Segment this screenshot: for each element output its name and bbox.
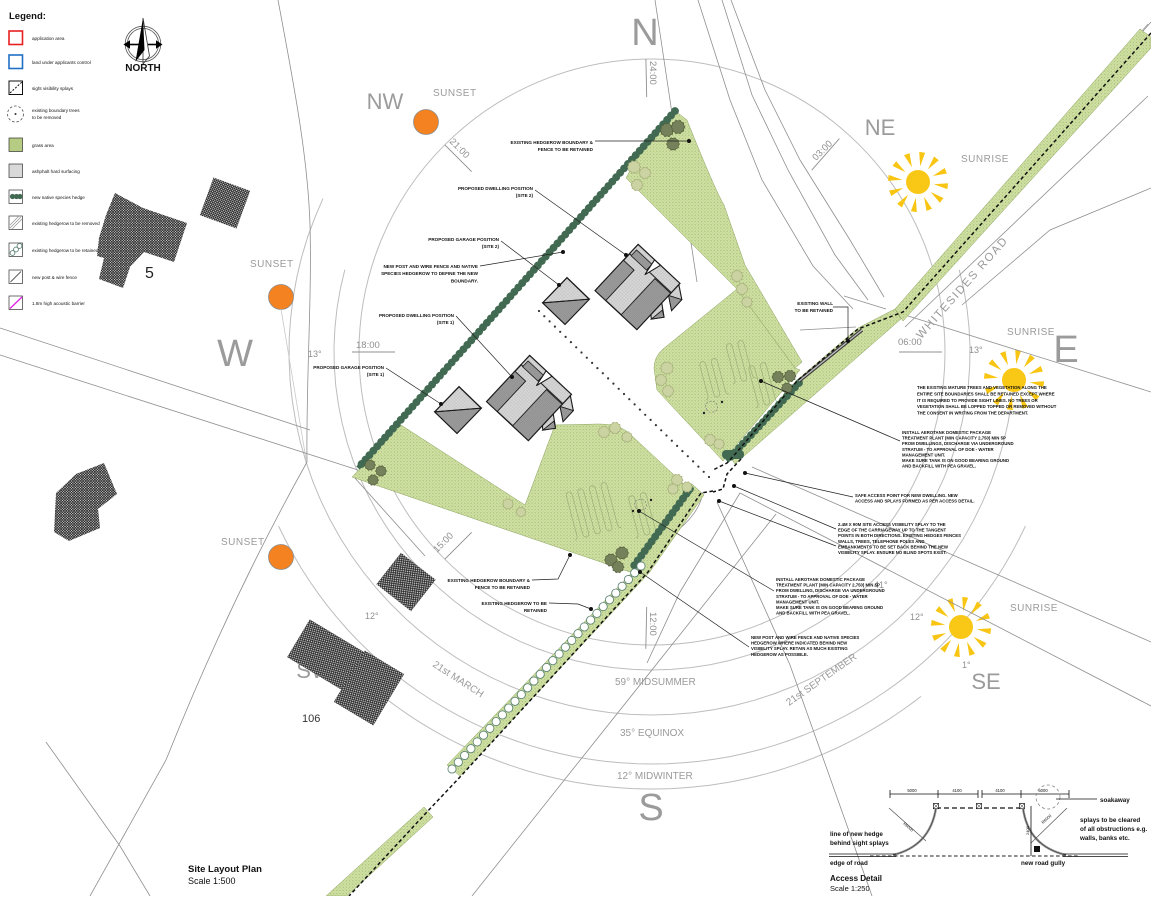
svg-text:Site Layout Plan: Site Layout Plan (188, 864, 262, 875)
svg-text:SE: SE (971, 669, 1000, 694)
svg-text:new native species hedge: new native species hedge (32, 195, 85, 200)
svg-text:sight visibility splays: sight visibility splays (32, 86, 74, 91)
svg-text:NEW POST AND WIRE FENCE AND NA: NEW POST AND WIRE FENCE AND NATIVE SPECI… (751, 635, 859, 640)
svg-text:21:00: 21:00 (447, 136, 472, 161)
svg-text:12°: 12° (910, 612, 924, 622)
svg-text:THE CONSENT IN WRITING FROM TH: THE CONSENT IN WRITING FROM THE DEPARTME… (917, 411, 1028, 416)
svg-text:2400: 2400 (1025, 825, 1030, 835)
svg-text:walls, banks etc.: walls, banks etc. (1079, 835, 1130, 842)
svg-text:1.8m high acoustic barrier: 1.8m high acoustic barrier (32, 301, 85, 306)
svg-text:PROPOSED GARAGE POSITION: PROPOSED GARAGE POSITION (313, 365, 384, 370)
svg-text:5: 5 (145, 265, 154, 282)
svg-text:new post & wire fence: new post & wire fence (32, 275, 77, 280)
svg-text:behind sight splays: behind sight splays (830, 840, 889, 847)
svg-text:12:00: 12:00 (647, 612, 658, 636)
svg-text:RETAINED: RETAINED (524, 608, 548, 613)
svg-text:PROPOSED GARAGE POSITION: PROPOSED GARAGE POSITION (428, 237, 499, 242)
svg-text:12°: 12° (365, 611, 379, 621)
svg-text:application area: application area (32, 36, 65, 41)
svg-text:12° MIDWINTER: 12° MIDWINTER (617, 771, 693, 782)
svg-text:21st MARCH: 21st MARCH (430, 659, 485, 700)
svg-text:S: S (638, 787, 663, 829)
svg-text:35° EQUINOX: 35° EQUINOX (620, 728, 684, 739)
svg-text:grass area: grass area (32, 143, 54, 148)
svg-text:SUNRISE: SUNRISE (1007, 327, 1055, 338)
svg-text:(SITE 2): (SITE 2) (516, 193, 534, 198)
svg-text:soakaway: soakaway (1100, 797, 1130, 804)
svg-text:INSTALL AEROTANK DOMESTIC PACK: INSTALL AEROTANK DOMESTIC PACKAGE (902, 430, 991, 435)
svg-text:POINTS IN BOTH DIRECTIONS. EXI: POINTS IN BOTH DIRECTIONS. EXISTING HEDG… (838, 533, 961, 538)
svg-text:MAKE SURE TANK IS ON GOOD BEAR: MAKE SURE TANK IS ON GOOD BEARING GROUND (902, 458, 1009, 463)
svg-text:EMBANKMENTS TO BE SET BACK BEH: EMBANKMENTS TO BE SET BACK BEHIND THE NE… (838, 544, 949, 549)
svg-text:06:00: 06:00 (898, 337, 922, 348)
svg-text:splays to be cleared: splays to be cleared (1080, 817, 1140, 824)
svg-text:VISIBILITY SPLAY. ENSURE NO BL: VISIBILITY SPLAY. ENSURE NO BLIND SPOTS … (838, 550, 947, 555)
svg-text:THE EXISTING MATURE TREES AND: THE EXISTING MATURE TREES AND VEGETATION… (917, 385, 1047, 390)
svg-text:PROPOSED DWELLING POSITION: PROPOSED DWELLING POSITION (379, 313, 455, 318)
svg-text:W: W (217, 333, 253, 375)
svg-text:VISIBILITY SPLAY. RETAIN AS MU: VISIBILITY SPLAY. RETAIN AS MUCH EXISTIN… (751, 646, 848, 651)
svg-text:EXISTING HEDGEROW TO BE: EXISTING HEDGEROW TO BE (481, 601, 547, 606)
svg-text:TREATMENT PLANT (MIN CAPACITY: TREATMENT PLANT (MIN CAPACITY 2,750) MIN… (902, 436, 1006, 441)
svg-text:(SITE 1): (SITE 1) (367, 372, 385, 377)
svg-text:TO BE RETAINED: TO BE RETAINED (795, 308, 834, 313)
svg-text:E: E (1053, 329, 1078, 371)
svg-text:EXISTING WALL: EXISTING WALL (797, 301, 833, 306)
svg-text:WALLS, TREES, TELEPHONE POLES: WALLS, TREES, TELEPHONE POLES AND (838, 539, 925, 544)
svg-text:existing boundary trees: existing boundary trees (32, 108, 80, 113)
svg-text:EDGE OF THE CARRIAGEWAY UP TO: EDGE OF THE CARRIAGEWAY UP TO THE TANGEN… (838, 528, 947, 533)
svg-text:HEDGEROW AS POSSIBLE.: HEDGEROW AS POSSIBLE. (751, 652, 808, 657)
svg-text:24:00: 24:00 (647, 61, 658, 85)
svg-text:(SITE 1): (SITE 1) (437, 320, 455, 325)
svg-text:03:00: 03:00 (810, 139, 835, 164)
svg-text:13°: 13° (969, 345, 983, 355)
svg-text:R6000: R6000 (1040, 813, 1053, 825)
svg-text:SPECIES HEDGEROW TO DEFINE THE: SPECIES HEDGEROW TO DEFINE THE NEW (381, 271, 479, 276)
svg-text:FENCE TO BE RETAINED: FENCE TO BE RETAINED (475, 585, 531, 590)
svg-text:Scale 1:500: Scale 1:500 (188, 876, 236, 886)
svg-text:SUNRISE: SUNRISE (1010, 603, 1058, 614)
svg-text:4100: 4100 (995, 788, 1005, 793)
svg-text:18:00: 18:00 (356, 340, 380, 351)
svg-text:BOUNDARY.: BOUNDARY. (451, 278, 478, 283)
svg-text:of all obstructions e.g.: of all obstructions e.g. (1080, 826, 1147, 833)
svg-text:PROPOSED DWELLING POSITION: PROPOSED DWELLING POSITION (458, 186, 534, 191)
svg-text:TREATMENT PLANT (MIN CAPACITY: TREATMENT PLANT (MIN CAPACITY 2,750) MIN… (776, 583, 880, 588)
svg-text:SAFE ACCESS POINT FOR NEW DWEL: SAFE ACCESS POINT FOR NEW DWELLING. NEW (855, 493, 959, 498)
svg-text:STRATUM - TO APPROVAL OF DOE -: STRATUM - TO APPROVAL OF DOE - WATER (776, 594, 868, 599)
svg-text:N: N (631, 12, 658, 54)
svg-text:existing hedgerow to be retain: existing hedgerow to be retained (32, 248, 99, 253)
svg-text:13°: 13° (308, 349, 322, 359)
svg-text:(SITE 2): (SITE 2) (482, 244, 500, 249)
svg-text:NE: NE (865, 115, 896, 140)
svg-text:INSTALL AEROTANK DOMESTIC PACK: INSTALL AEROTANK DOMESTIC PACKAGE (776, 577, 865, 582)
svg-text:EXISTING HEDGEROW BOUNDARY &: EXISTING HEDGEROW BOUNDARY & (511, 140, 594, 145)
svg-text:NORTH: NORTH (125, 63, 161, 74)
svg-text:1°: 1° (962, 660, 971, 670)
svg-text:SUNSET: SUNSET (250, 259, 294, 270)
svg-text:EXISTING HEDGEROW BOUNDARY &: EXISTING HEDGEROW BOUNDARY & (448, 578, 531, 583)
svg-text:VEGETATION SHALL BE LOPPED TOP: VEGETATION SHALL BE LOPPED TOPPED OR REM… (917, 404, 1057, 409)
svg-text:R6000: R6000 (902, 821, 915, 833)
svg-text:ashphalt hard surfacing: ashphalt hard surfacing (32, 169, 80, 174)
svg-text:Access Detail: Access Detail (830, 874, 882, 883)
svg-text:MANAGEMENT UNIT.: MANAGEMENT UNIT. (902, 452, 945, 457)
svg-text:MAKE SURE TANK IS ON GOOD BEAR: MAKE SURE TANK IS ON GOOD BEARING GROUND (776, 605, 883, 610)
svg-text:SUNSET: SUNSET (433, 88, 477, 99)
svg-text:NW: NW (367, 89, 404, 114)
svg-text:line of new hedge: line of new hedge (830, 831, 883, 838)
svg-text:edge of road: edge of road (830, 860, 868, 867)
svg-text:5000: 5000 (907, 788, 917, 793)
svg-text:Legend:: Legend: (9, 11, 46, 22)
svg-text:MANAGEMENT UNIT.: MANAGEMENT UNIT. (776, 599, 819, 604)
svg-text:land under applicants control: land under applicants control (32, 60, 91, 65)
svg-text:SUNRISE: SUNRISE (961, 154, 1009, 165)
svg-text:IT IS REQUIRED TO PROVIDE SIGH: IT IS REQUIRED TO PROVIDE SIGHT LINES. N… (917, 398, 1039, 403)
svg-text:AND BACKFILL WITH PEA GRAVEL.: AND BACKFILL WITH PEA GRAVEL. (902, 464, 976, 469)
svg-text:106: 106 (302, 713, 320, 725)
svg-text:AND BACKFILL WITH PEA GRAVEL.: AND BACKFILL WITH PEA GRAVEL. (776, 611, 850, 616)
svg-text:HEDGEROW WHERE INDICATED BEHIN: HEDGEROW WHERE INDICATED BEHIND NEW (751, 641, 848, 646)
svg-text:Scale 1:250: Scale 1:250 (830, 884, 870, 893)
svg-text:to be removed: to be removed (32, 115, 62, 120)
svg-text:59° MIDSUMMER: 59° MIDSUMMER (615, 677, 696, 688)
svg-text:SUNSET: SUNSET (221, 537, 265, 548)
svg-text:new road gully: new road gully (1021, 860, 1066, 867)
svg-text:ENTIRE SITE BOUNDARIES SHALL B: ENTIRE SITE BOUNDARIES SHALL BE RETAINED… (917, 391, 1055, 396)
svg-text:FENCE TO BE RETAINED: FENCE TO BE RETAINED (538, 147, 594, 152)
svg-text:2.4M X 90M SITE ACCESS VISIBIL: 2.4M X 90M SITE ACCESS VISIBILITY SPLAY … (838, 522, 946, 527)
svg-text:NEW POST AND WIRE FENCE AND NA: NEW POST AND WIRE FENCE AND NATIVE (383, 264, 478, 269)
svg-text:existing hedgerow to be remove: existing hedgerow to be removed (32, 221, 100, 226)
svg-text:FROM DWELLING, DISCHARGE VIA U: FROM DWELLING, DISCHARGE VIA UNDERGROUND (776, 588, 885, 593)
svg-text:4100: 4100 (952, 788, 962, 793)
svg-text:STRATUM - TO APPROVAL OF DOE -: STRATUM - TO APPROVAL OF DOE - WATER (902, 447, 994, 452)
svg-text:FROM DWELLINGS, DISCHARGE VIA: FROM DWELLINGS, DISCHARGE VIA UNDERGROUN… (902, 441, 1014, 446)
svg-text:ACCESS AND SPLAYS FORMED AS PE: ACCESS AND SPLAYS FORMED AS PER ACCESS D… (855, 499, 975, 504)
